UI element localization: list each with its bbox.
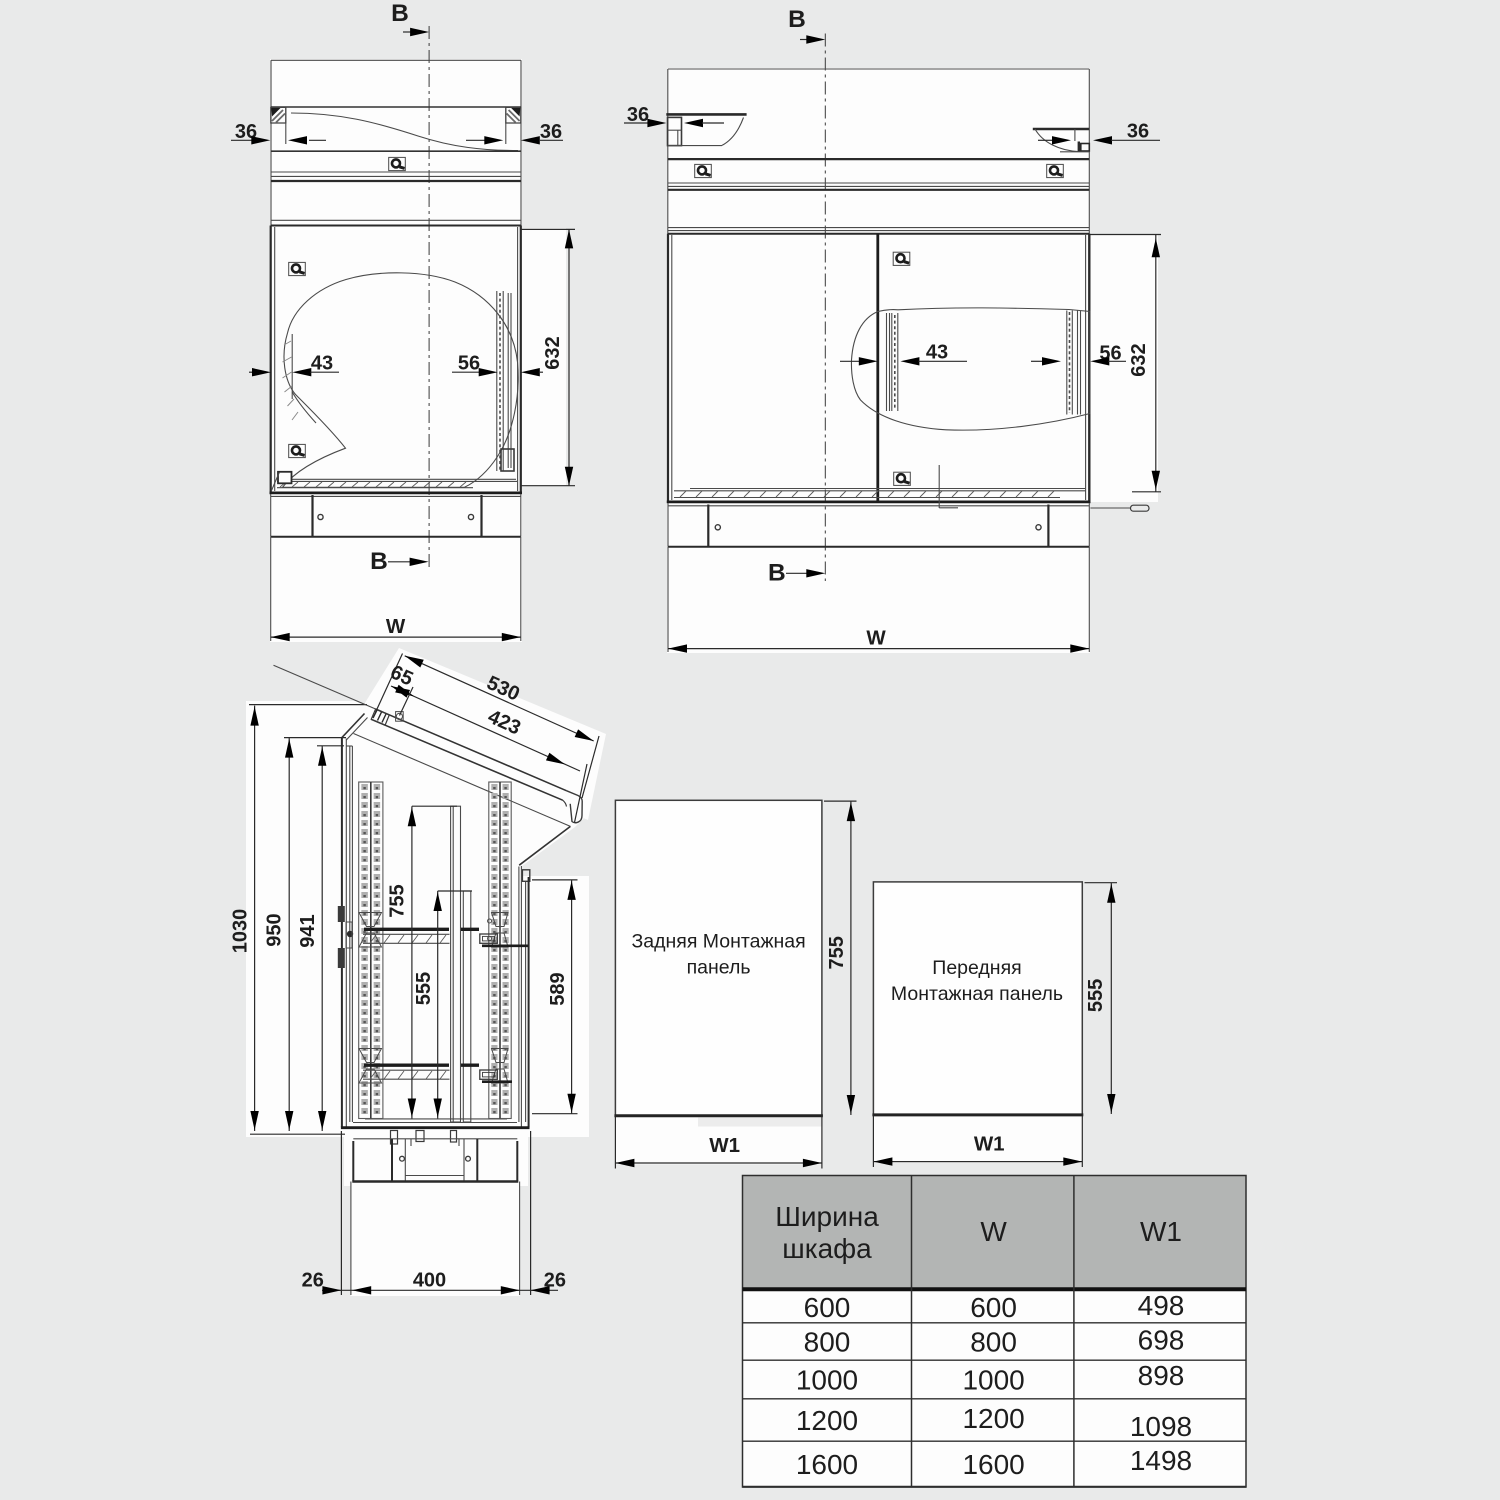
svg-text:43: 43 [311,353,333,375]
svg-text:555: 555 [413,972,435,1005]
svg-text:W1: W1 [1140,1216,1182,1247]
svg-text:W: W [386,615,406,638]
svg-text:632: 632 [1128,343,1150,376]
svg-text:W1: W1 [974,1133,1005,1156]
svg-text:Ширина: Ширина [775,1201,879,1232]
svg-text:1000: 1000 [796,1365,858,1396]
svg-text:800: 800 [970,1327,1017,1358]
svg-text:400: 400 [413,1269,446,1291]
svg-text:1098: 1098 [1130,1411,1192,1442]
svg-text:Монтажная панель: Монтажная панель [891,983,1063,1005]
svg-text:1030: 1030 [230,909,252,954]
svg-text:755: 755 [386,884,408,917]
svg-text:632: 632 [542,336,564,369]
svg-text:1600: 1600 [962,1449,1024,1480]
svg-text:1200: 1200 [796,1405,858,1436]
svg-text:950: 950 [264,913,286,946]
svg-text:800: 800 [804,1327,851,1358]
svg-text:W: W [980,1216,1007,1247]
svg-text:B: B [370,548,388,575]
svg-text:Передняя: Передняя [932,957,1021,979]
svg-text:26: 26 [302,1269,324,1291]
svg-text:панель: панель [687,957,751,979]
svg-text:43: 43 [926,342,948,364]
svg-text:B: B [768,560,786,587]
svg-text:941: 941 [297,914,319,947]
svg-text:Задняя Монтажная: Задняя Монтажная [632,931,806,953]
svg-text:26: 26 [544,1269,566,1291]
svg-text:W: W [866,626,886,649]
svg-text:600: 600 [804,1292,851,1323]
svg-text:B: B [391,0,409,27]
svg-text:1498: 1498 [1130,1445,1192,1476]
svg-text:755: 755 [826,936,848,969]
svg-text:555: 555 [1085,979,1107,1012]
svg-text:698: 698 [1138,1325,1185,1356]
svg-text:W1: W1 [709,1134,740,1157]
svg-text:B: B [788,6,806,33]
svg-text:1600: 1600 [796,1449,858,1480]
svg-text:498: 498 [1138,1290,1185,1321]
svg-text:1000: 1000 [962,1365,1024,1396]
svg-text:600: 600 [970,1292,1017,1323]
svg-text:1200: 1200 [962,1403,1024,1434]
svg-text:56: 56 [458,353,480,375]
svg-text:589: 589 [547,972,569,1005]
svg-text:шкафа: шкафа [782,1233,872,1264]
svg-text:36: 36 [1127,121,1149,143]
svg-text:898: 898 [1138,1360,1185,1391]
